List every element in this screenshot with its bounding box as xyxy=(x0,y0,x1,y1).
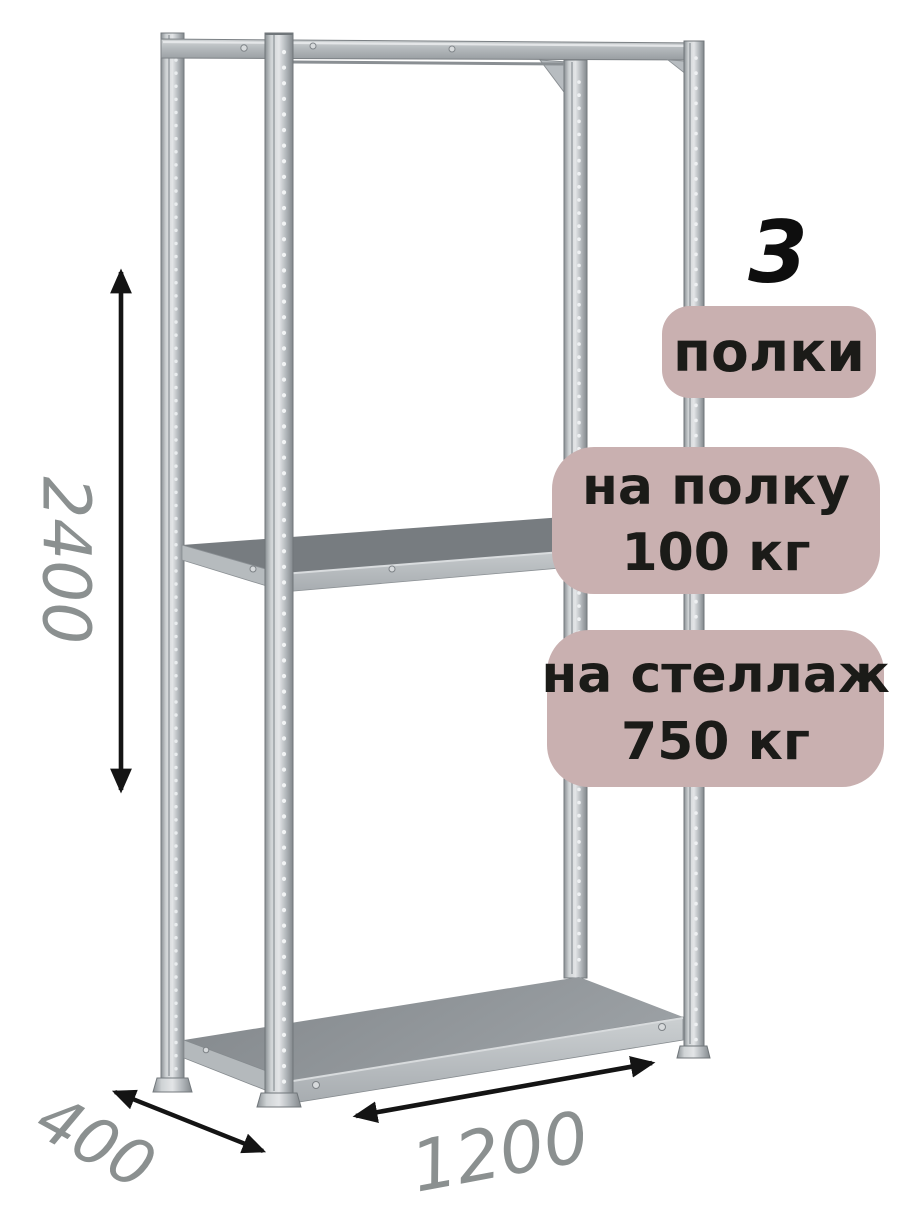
per-rack-load-badge: на стеллаж 750 кг xyxy=(547,630,884,787)
shelf-count-badge: полки xyxy=(662,306,876,398)
per-shelf-load-badge: на полку 100 кг xyxy=(552,447,880,594)
per-rack-load-line1: на стеллаж xyxy=(541,642,889,709)
rack-post-back-left xyxy=(153,33,192,1092)
per-rack-load-line2: 750 кг xyxy=(621,709,810,776)
per-shelf-load-line2: 100 кг xyxy=(621,521,810,587)
per-shelf-load-line1: на полку xyxy=(582,455,850,521)
shelf-count-number: 3 xyxy=(727,208,829,298)
shelf-count-badge-label: полки xyxy=(673,320,865,384)
product-image: 2400 400 1200 3 полки на полку 100 кг на… xyxy=(0,0,900,1200)
rack-shelf-top xyxy=(161,39,702,82)
rack-shelf-bottom xyxy=(184,977,683,1103)
height-dimension-label: 2400 xyxy=(29,472,102,648)
shelving-rack-illustration xyxy=(0,0,900,1200)
